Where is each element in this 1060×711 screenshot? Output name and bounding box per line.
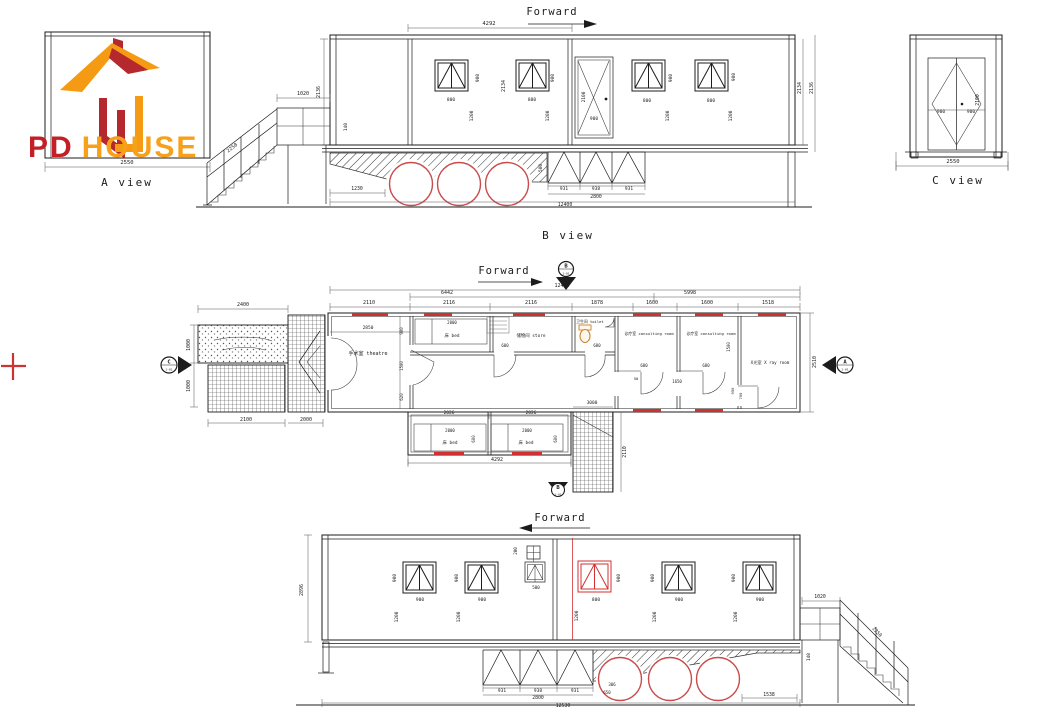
dimension-label: 900 xyxy=(392,574,398,582)
dimension-label: 2100 xyxy=(975,94,981,106)
dimension-label: 800 xyxy=(643,98,651,104)
room-label: X光室 X ray room xyxy=(751,359,790,366)
window-symbol xyxy=(662,562,695,593)
room-label: 手术室 theatre xyxy=(348,350,387,357)
door-swing xyxy=(758,387,779,408)
dimension-label: 12530 xyxy=(556,703,571,709)
dimension-label: 2026 xyxy=(526,410,537,416)
door-swing xyxy=(585,355,605,377)
dimension-label: 2100 xyxy=(240,417,252,423)
dimension-label: 680 xyxy=(640,363,648,368)
dimension-label: 931 xyxy=(560,186,568,192)
dimension-label: 200 xyxy=(513,547,518,555)
marker-letter: C xyxy=(167,360,170,366)
dimension-label: 2896 xyxy=(299,584,305,596)
room-label: 储物间 store xyxy=(516,332,545,339)
forward-label-bottom: Forward xyxy=(534,512,585,524)
dimension-label: 900 xyxy=(756,597,764,603)
wheel-icon xyxy=(438,163,481,206)
entry-door xyxy=(575,57,613,138)
dimension-label: 4292 xyxy=(482,21,495,27)
dimension-label: 2136 xyxy=(809,82,815,94)
chassis-truss-bottom xyxy=(483,650,593,685)
door-handle-icon xyxy=(605,98,608,101)
dimension-label: 2550 xyxy=(946,159,959,165)
dimension-label: 900 xyxy=(550,74,556,82)
a-view-label: A view xyxy=(101,176,153,189)
dimension-label: 800 xyxy=(447,97,455,103)
room-label: 诊疗室 consulting room xyxy=(624,331,674,336)
dimension-label: 1878 xyxy=(591,300,603,306)
dimension-label: 900 xyxy=(650,574,656,582)
dimension-label: 1538 xyxy=(763,692,775,698)
container-house-drawing: PDHOUSE A view Forward xyxy=(0,0,1060,711)
dimension-label: 306 xyxy=(608,682,616,687)
section-marker-a-right: A 1-01 xyxy=(822,356,853,374)
wheel-icon xyxy=(697,658,740,701)
dimension-label: 500 xyxy=(532,585,540,590)
arrow-left-icon xyxy=(519,524,532,532)
arrow-right-icon xyxy=(531,278,543,286)
dimension-label: 900 xyxy=(590,116,598,122)
dimension-label: 1600 xyxy=(701,300,713,306)
dimension-label: 2134 xyxy=(501,80,507,92)
forward-label-top: Forward xyxy=(526,6,577,18)
dimension-label: 1200 xyxy=(728,110,734,121)
chassis-truss xyxy=(548,152,645,183)
dimension-label: 2850 xyxy=(363,325,374,331)
d-view-elevation: Forward xyxy=(296,512,915,707)
trailer-wheels xyxy=(386,159,532,209)
room-label: 床 bed xyxy=(445,332,460,339)
red-cross-icon xyxy=(1,353,26,380)
dimension-label: 900 xyxy=(478,597,486,603)
rear-platform xyxy=(573,412,613,492)
dimension-label: 2116 xyxy=(525,300,537,306)
window-symbol xyxy=(403,562,436,593)
window-symbol xyxy=(516,60,549,91)
trailer-wheels-bottom xyxy=(596,655,742,703)
dimension-label: 931 xyxy=(571,688,579,694)
d-view-body xyxy=(322,535,800,640)
dimension-label: 931 xyxy=(625,186,633,192)
dimension-label: 1200 xyxy=(665,110,671,121)
dimension-label: 1200 xyxy=(456,611,462,622)
dimension-label: 900 xyxy=(399,327,404,335)
rear-support xyxy=(788,152,795,207)
dimension-label: 2100 xyxy=(581,91,587,102)
forward-label-plan: Forward xyxy=(478,265,529,277)
entry-stairs-left xyxy=(203,108,330,205)
a-view-elevation: PDHOUSE A view xyxy=(28,32,210,189)
dimension-label: 500 xyxy=(538,164,544,172)
exit-stairs-right xyxy=(800,600,908,705)
annex-outer-wall xyxy=(408,412,571,455)
dimension-label: 1020 xyxy=(297,91,309,97)
dimension-label: 12400 xyxy=(558,202,573,208)
roof-vent xyxy=(527,546,540,562)
dimension-label: 2134 xyxy=(797,82,803,94)
window-symbol-red xyxy=(578,561,611,592)
dimension-label: 6442 xyxy=(441,290,453,296)
dimension-label: 1230 xyxy=(351,186,363,192)
dimension-label: 2400 xyxy=(237,302,249,308)
dimension-label: 1200 xyxy=(733,611,739,622)
room-label: 床 bed xyxy=(519,439,534,446)
dimension-label: 900 xyxy=(731,574,737,582)
floor-plan: Forward xyxy=(1,262,853,497)
basin-fixture xyxy=(605,318,614,327)
dimension-label: 650 xyxy=(603,690,611,695)
section-marker-b-bottom: B 1-01 xyxy=(548,482,568,497)
dimension-label: 4292 xyxy=(491,457,503,463)
door-swing xyxy=(641,372,663,394)
door-swing xyxy=(703,372,725,394)
room-label: 床 bed xyxy=(443,439,458,446)
marker-sub: 1-01 xyxy=(562,272,569,276)
dimension-label: 900 xyxy=(937,109,945,115)
room-label-layer: 手术室 theatre床 bed储物间 store卫生间 toilet诊疗室 c… xyxy=(348,319,789,446)
wheel-icon xyxy=(486,163,529,206)
cad-drawing-canvas: PDHOUSE A view Forward xyxy=(0,0,1060,711)
dimension-label: 1200 xyxy=(652,611,658,622)
dimension-label: 50 xyxy=(634,376,639,381)
entry-ramp xyxy=(198,325,288,363)
marker-sub: 1-01 xyxy=(165,368,172,372)
window-symbol xyxy=(743,562,776,593)
dimension-label: 2110 xyxy=(363,300,375,306)
dimension-label: 2116 xyxy=(443,300,455,306)
dimension-label: 680 xyxy=(702,363,710,368)
arrow-right-icon xyxy=(584,20,597,28)
dimension-label: 900 xyxy=(675,597,683,603)
dimension-label: 1600 xyxy=(646,300,658,306)
marker-sub: 1-01 xyxy=(841,368,848,372)
brand-house: HOUSE xyxy=(82,131,199,164)
dimension-label: 1200 xyxy=(545,110,551,121)
dimension-label: 2800 xyxy=(590,194,602,200)
section-marker-c-left: C 1-01 xyxy=(161,356,192,374)
dimension-label: 1020 xyxy=(814,594,826,600)
dimension-label: 2000 xyxy=(447,320,457,325)
c-view-frame xyxy=(910,35,1002,157)
dimension-label: 600 xyxy=(471,435,476,443)
dimension-label: 1650 xyxy=(672,379,682,384)
dimension-label: 900 xyxy=(967,109,975,115)
dimension-label: 800 xyxy=(528,97,536,103)
window-symbol xyxy=(632,60,665,91)
dimension-label: 700 xyxy=(738,392,743,400)
window-marker-red xyxy=(352,315,786,411)
dimension-label: 800 xyxy=(592,597,600,603)
dimension-label: 5998 xyxy=(684,290,696,296)
dimension-label: 2550 xyxy=(120,160,133,166)
forward-arrow-bottom xyxy=(519,524,590,532)
brand-pd: PD xyxy=(28,131,74,164)
b-view-body xyxy=(330,35,795,145)
dimension-label: 1500 xyxy=(726,342,731,352)
entry-platform xyxy=(288,315,325,412)
dimension-label: 1500 xyxy=(399,361,404,371)
dimension-label: 900 xyxy=(731,73,737,81)
b-view-label: B view xyxy=(542,229,594,242)
dimension-label: 2000 xyxy=(522,428,532,433)
dimension-label: 2000 xyxy=(445,428,455,433)
front-support xyxy=(323,642,329,672)
wheel-icon xyxy=(649,658,692,701)
dimension-label: 1200 xyxy=(394,611,400,622)
dimension-label: 950 xyxy=(730,387,735,395)
dimension-label: 600 xyxy=(501,343,509,348)
marker-sub: 1-01 xyxy=(554,493,561,497)
dimension-label: 2250 xyxy=(226,142,239,154)
dimension-label: 900 xyxy=(454,574,460,582)
dimension-label: 938 xyxy=(534,688,542,694)
room-label: 诊疗室 consulting room xyxy=(686,331,736,336)
door-handle-icon xyxy=(961,103,964,106)
dimension-label: 2026 xyxy=(444,410,455,416)
dimension-label: 938 xyxy=(592,186,600,192)
window-symbol xyxy=(435,60,468,91)
toilet-fixture xyxy=(579,325,591,343)
dimension-label: 1200 xyxy=(469,110,475,121)
dimension-label: 3000 xyxy=(587,400,598,406)
b-view-elevation: Forward xyxy=(196,6,815,242)
c-view-label: C view xyxy=(932,174,984,187)
dimension-label: 2000 xyxy=(300,417,312,423)
dimension-label: 620 xyxy=(399,393,404,401)
dimension-label: 2800 xyxy=(532,695,544,701)
dimension-label: 900 xyxy=(616,574,622,582)
room-label: 卫生间 toilet xyxy=(576,319,603,324)
door-swing xyxy=(494,355,516,377)
dimension-label: 900 xyxy=(668,74,674,82)
dimension-label: 1518 xyxy=(762,300,774,306)
forward-arrow-top xyxy=(528,20,597,28)
dimension-label: 140 xyxy=(343,123,349,131)
dimension-label: 1000 xyxy=(186,339,192,351)
dimension-label: 900 xyxy=(416,597,424,603)
lower-platform xyxy=(208,365,285,412)
dimension-label: 1000 xyxy=(186,380,192,392)
dimension-label: 2136 xyxy=(316,86,322,98)
forward-arrow-plan xyxy=(478,278,543,286)
dimension-label: 600 xyxy=(553,435,558,443)
dimension-label: 1200 xyxy=(574,610,580,621)
wheel-icon xyxy=(390,163,433,206)
dimension-label: 2510 xyxy=(812,356,818,368)
window-symbol xyxy=(465,562,498,593)
window-symbol xyxy=(695,60,728,91)
small-window xyxy=(525,562,545,582)
dimension-label: 900 xyxy=(475,74,481,82)
dimension-label: 680 xyxy=(593,343,601,348)
brand-wordmark: PDHOUSE xyxy=(28,131,198,164)
dimension-label: 140 xyxy=(806,653,812,661)
dimension-label: 931 xyxy=(498,688,506,694)
dimension-label: 2110 xyxy=(622,446,628,458)
dimension-label: 12400 xyxy=(554,283,569,289)
dimension-label: 800 xyxy=(707,98,715,104)
